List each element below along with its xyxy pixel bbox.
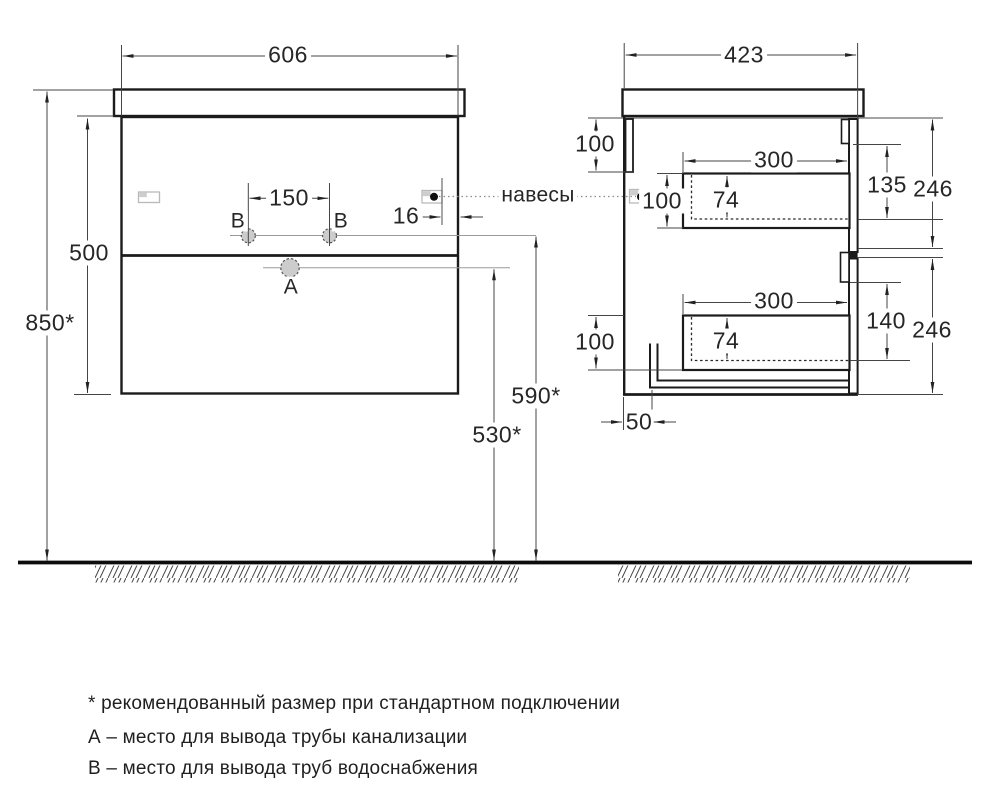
side-view xyxy=(572,43,943,430)
dim-side-lower-drawer-depth: 300 xyxy=(751,289,797,314)
technical-drawing-canvas xyxy=(0,0,1000,794)
side-upper-fixing-bracket xyxy=(842,120,850,144)
front-left-hanger-bracket xyxy=(139,192,160,203)
note-supply-location: В – место для вывода труб водоснабжения xyxy=(88,758,478,781)
front-countertop xyxy=(114,90,465,117)
ground-line xyxy=(18,563,972,583)
dim-side-lower-drop: 140 xyxy=(863,309,909,334)
dim-side-upper-drop: 135 xyxy=(864,173,910,198)
side-divider-edge xyxy=(849,253,858,259)
label-drain-hole: А xyxy=(282,277,301,298)
ground-hatch-right xyxy=(618,566,910,583)
side-countertop xyxy=(623,90,864,117)
dim-side-upper-drawer-depth: 300 xyxy=(751,148,797,173)
dim-front-sewer-height: 530* xyxy=(469,423,524,448)
label-supply-hole-left: В xyxy=(229,211,248,232)
side-wall-rail xyxy=(626,119,634,172)
hanger-dot-icon xyxy=(430,193,438,201)
note-drain-location: А – место для вывода трубы канализации xyxy=(88,727,467,750)
side-upper-drawer-box xyxy=(683,174,850,229)
dim-front-holes-spacing: 150 xyxy=(266,186,312,211)
note-recommended-size: * рекомендованный размер при стандартном… xyxy=(88,693,620,716)
dim-side-lower-front-height: 100 xyxy=(572,330,618,355)
dim-front-cabinet-height: 500 xyxy=(66,241,112,266)
dim-side-upper-inner-height: 74 xyxy=(710,188,743,213)
dim-side-upper-section: 246 xyxy=(910,177,956,202)
dim-front-width: 606 xyxy=(265,43,311,68)
dim-side-lower-section: 246 xyxy=(909,318,955,343)
label-supply-hole-right: В xyxy=(332,211,351,232)
dim-side-pipe-offset: 50 xyxy=(625,410,654,435)
side-lower-fixing-bracket xyxy=(841,253,850,283)
dim-front-overall-height: 850* xyxy=(22,311,77,336)
drain-hole xyxy=(281,259,299,277)
dim-front-hanger-inset: 16 xyxy=(390,204,423,229)
dim-side-lower-inner-height: 74 xyxy=(710,329,743,354)
dim-front-drain-height: 590* xyxy=(508,384,563,409)
ground-hatch-left xyxy=(95,566,519,583)
vanity-installation-drawing: 606 850* 500 150 16 590* 530* В В А наве… xyxy=(0,0,1000,794)
front-view xyxy=(33,45,536,561)
label-hangers: навесы xyxy=(498,184,577,207)
dim-side-rail-height: 100 xyxy=(572,132,618,157)
dim-side-upper-front-height: 100 xyxy=(639,189,685,214)
side-lower-drawer-box xyxy=(683,316,850,371)
dim-side-depth: 423 xyxy=(721,43,767,68)
